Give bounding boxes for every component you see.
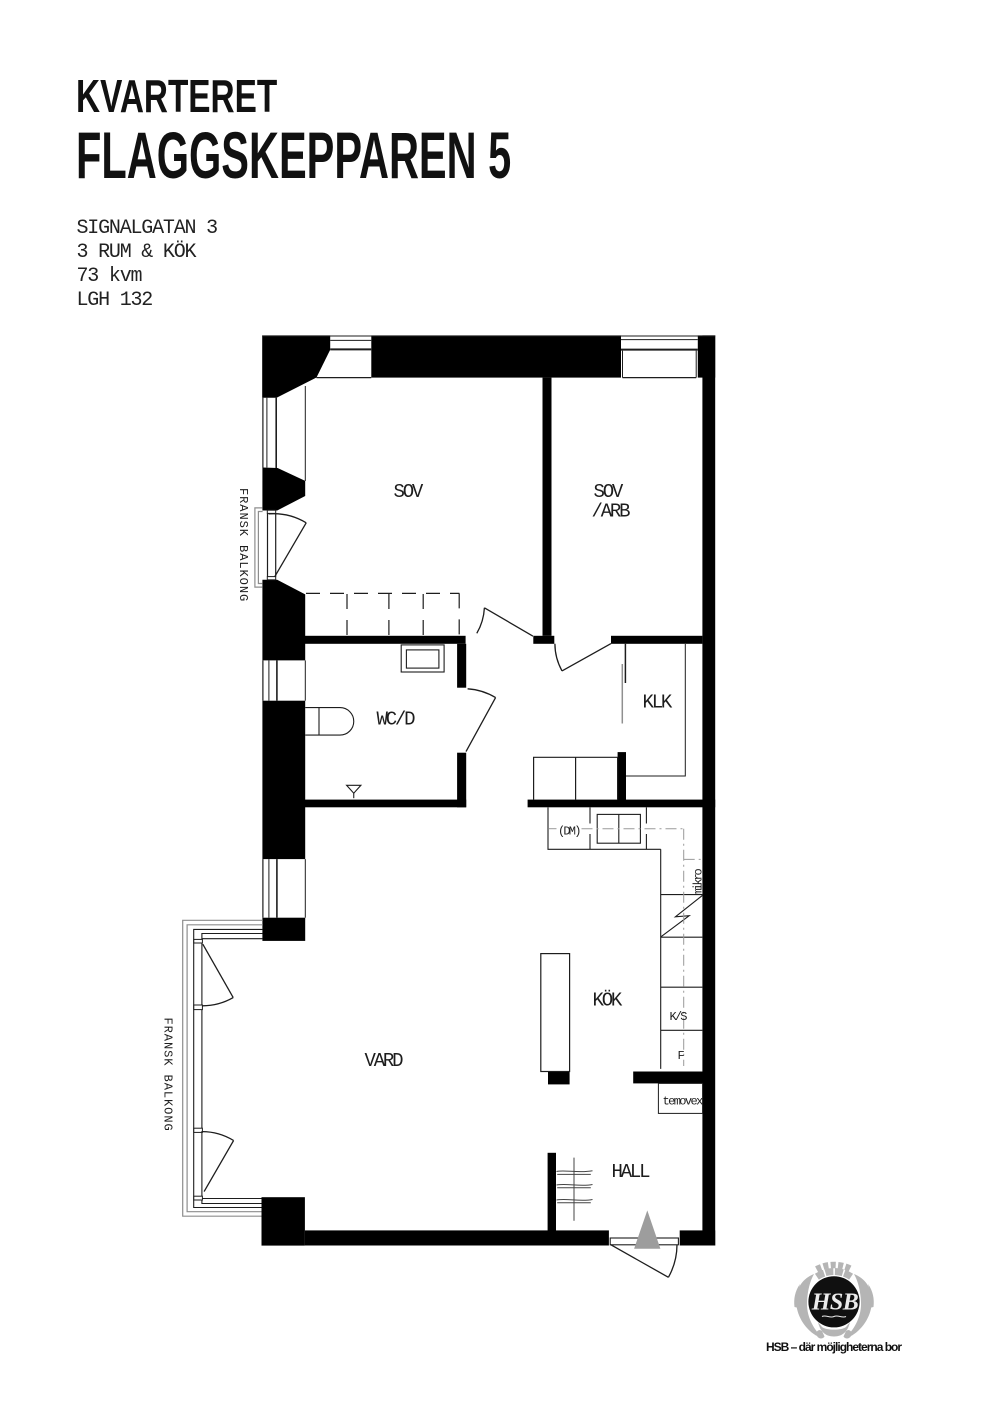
- svg-text:FRANSK BALKONG: FRANSK BALKONG: [160, 1018, 174, 1132]
- svg-text:HSB: HSB: [811, 1290, 859, 1316]
- svg-text:mikro: mikro: [692, 868, 706, 895]
- svg-text:SIGNALGATAN 3: SIGNALGATAN 3: [77, 217, 218, 240]
- svg-text:/ARB: /ARB: [592, 501, 631, 523]
- svg-text:SOV: SOV: [394, 481, 424, 503]
- svg-text:HALL: HALL: [612, 1161, 651, 1183]
- svg-text:WC/D: WC/D: [377, 709, 416, 731]
- svg-text:73 kvm: 73 kvm: [77, 265, 142, 288]
- svg-text:FLAGGSKEPPAREN 5: FLAGGSKEPPAREN 5: [76, 118, 511, 192]
- svg-text:temovex: temovex: [663, 1095, 704, 1109]
- svg-text:KVARTERET: KVARTERET: [76, 71, 278, 123]
- svg-text:K/S: K/S: [670, 1010, 688, 1024]
- svg-text:LGH 132: LGH 132: [77, 289, 153, 312]
- svg-text:KLK: KLK: [643, 692, 673, 714]
- svg-text:KÖK: KÖK: [593, 990, 623, 1012]
- svg-text:HSB – där möjligheterna bor: HSB – där möjligheterna bor: [766, 1340, 902, 1354]
- svg-text:(DM): (DM): [558, 825, 580, 839]
- svg-text:FRANSK BALKONG: FRANSK BALKONG: [236, 488, 250, 602]
- svg-text:3 RUM & KÖK: 3 RUM & KÖK: [77, 240, 197, 264]
- svg-text:VARD: VARD: [365, 1050, 404, 1072]
- svg-text:F: F: [678, 1049, 685, 1063]
